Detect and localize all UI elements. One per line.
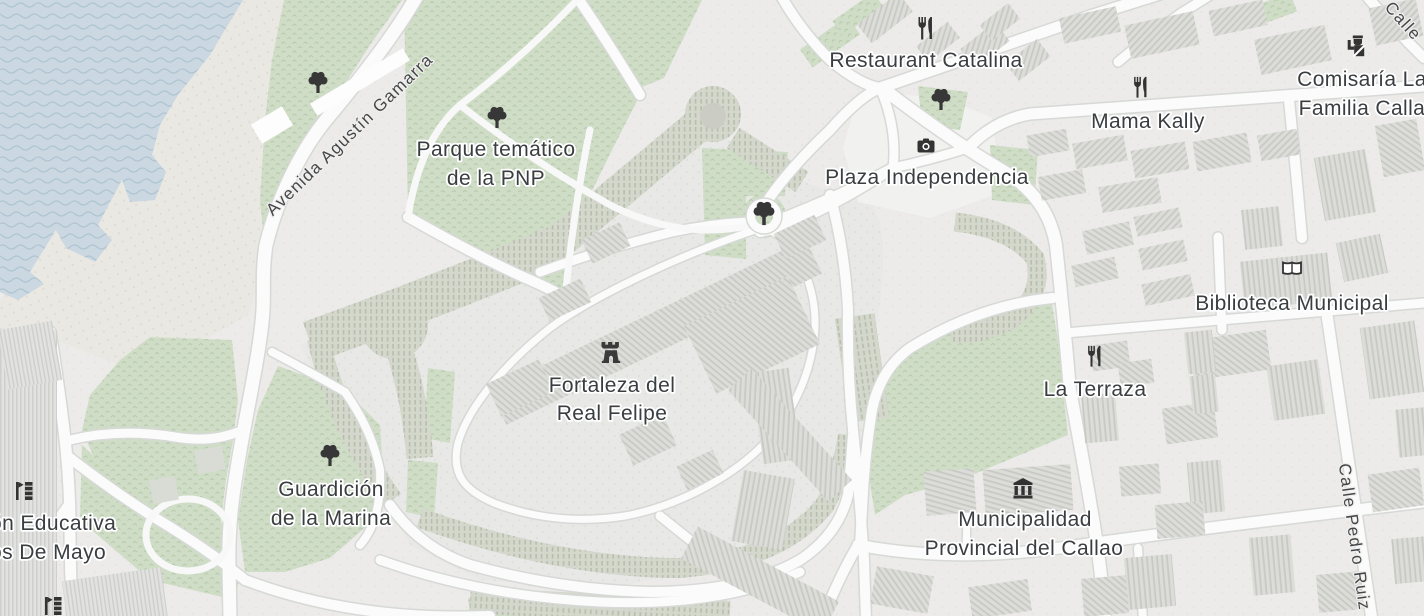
svg-text:Comisaría La: Comisaría La <box>1297 68 1424 91</box>
svg-text:os De Mayo: os De Mayo <box>0 541 106 564</box>
svg-text:ón Educativa: ón Educativa <box>0 512 116 535</box>
svg-text:La Terraza: La Terraza <box>1044 378 1147 401</box>
svg-text:Real Felipe: Real Felipe <box>557 402 668 425</box>
svg-text:de la Marina: de la Marina <box>271 507 391 530</box>
svg-text:Guardición: Guardición <box>278 478 384 501</box>
svg-text:Restaurant Catalina: Restaurant Catalina <box>829 49 1022 72</box>
svg-text:de la PNP: de la PNP <box>447 167 545 190</box>
svg-text:Familia Callao: Familia Callao <box>1299 97 1424 120</box>
svg-text:Biblioteca Municipal: Biblioteca Municipal <box>1195 292 1389 315</box>
svg-text:Fortaleza del: Fortaleza del <box>549 374 676 397</box>
svg-text:Plaza Independencia: Plaza Independencia <box>825 166 1029 189</box>
svg-text:Mama Kally: Mama Kally <box>1091 110 1205 133</box>
svg-text:Parque temático: Parque temático <box>417 138 576 161</box>
svg-text:Municipalidad: Municipalidad <box>958 508 1092 531</box>
svg-text:Provincial del Callao: Provincial del Callao <box>925 537 1124 560</box>
